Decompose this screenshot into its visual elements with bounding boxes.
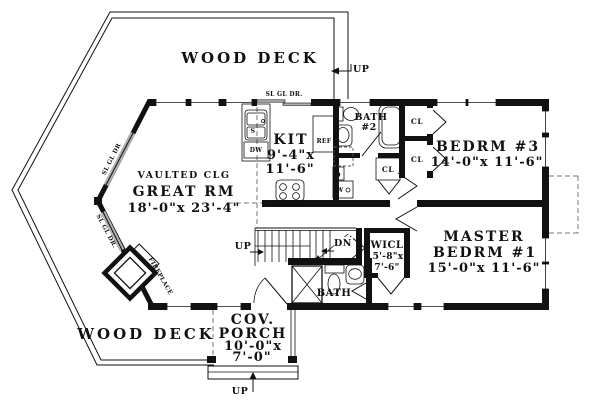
svg-text:UP: UP <box>232 386 248 397</box>
deck-bottom-label: WOOD DECK <box>76 325 215 343</box>
deck-stair-up: UP <box>331 64 369 75</box>
sink-label: S <box>251 128 256 135</box>
window <box>156 99 186 106</box>
cl-b-label: CL <box>411 155 423 164</box>
kitchen-dims2: 11'-6" <box>265 162 314 177</box>
deck-top-label: WOOD DECK <box>180 49 319 67</box>
great-room-ceiling: VAULTED CLG <box>137 170 231 181</box>
kitchen-label: KIT <box>273 132 308 148</box>
sl-gl-dr-top-label: SL GL DR. <box>265 91 302 98</box>
entry-door <box>254 278 287 304</box>
great-room-label: GREAT RM <box>133 184 236 200</box>
bath2-door <box>362 132 381 156</box>
wicl-dims2: 7'-6" <box>374 263 399 273</box>
master-bath-door <box>352 283 366 299</box>
closet-a-door <box>433 110 446 134</box>
closet-c-door <box>378 180 400 194</box>
wicl-door <box>378 278 404 294</box>
wicl-dims1: 5'-8"x <box>373 252 404 262</box>
window <box>542 238 549 262</box>
refrigerator <box>313 116 336 152</box>
porch-dims2: 7'-0" <box>232 350 271 365</box>
svg-text:DN: DN <box>334 238 352 249</box>
sliding-door-kitchen <box>257 99 311 106</box>
window <box>437 99 466 106</box>
floor-plan: UP <box>0 0 600 411</box>
wicl-label: WICL <box>370 240 404 251</box>
cl-c-label: CL <box>382 165 394 174</box>
porch-up: UP <box>232 372 257 397</box>
great-room-dims: 18'-0"x 23'-4" <box>128 201 241 216</box>
window <box>468 99 496 106</box>
window <box>191 99 219 106</box>
kitchen-sink <box>245 110 267 140</box>
sink <box>346 265 364 284</box>
master-label1: MASTER <box>443 229 524 245</box>
window <box>340 99 370 106</box>
up-deck-label: UP <box>353 64 369 75</box>
dishwasher-label: DW <box>250 147 263 154</box>
window <box>226 99 252 106</box>
dryer-label: D <box>335 172 341 179</box>
window <box>167 303 191 310</box>
ref-label: REF <box>317 138 332 145</box>
window <box>388 303 414 310</box>
window <box>217 303 241 310</box>
window <box>542 264 549 289</box>
svg-text:UP: UP <box>235 241 251 252</box>
bath2-label2: #2 <box>361 122 377 133</box>
washer-label: W <box>335 187 343 194</box>
stairs-dn-label: DN <box>321 237 353 254</box>
bedrm3-dims: 14'-0"x 11'-6" <box>431 155 544 170</box>
optional-feature-dashed <box>549 176 578 233</box>
window <box>421 303 444 310</box>
bedrm3-label: BEDRM #3 <box>436 139 540 155</box>
master-bath-label: BATH <box>317 288 352 299</box>
master-dims: 15'-0"x 11'-6" <box>428 261 541 276</box>
cl-a-label: CL <box>411 117 423 126</box>
master-label2: BEDRM #1 <box>433 245 537 261</box>
stairs-up-label: UP <box>235 241 264 255</box>
kitchen-dims1: 9'-4"x <box>267 148 315 163</box>
master-door <box>396 207 417 231</box>
range <box>276 180 304 201</box>
window <box>542 111 549 133</box>
